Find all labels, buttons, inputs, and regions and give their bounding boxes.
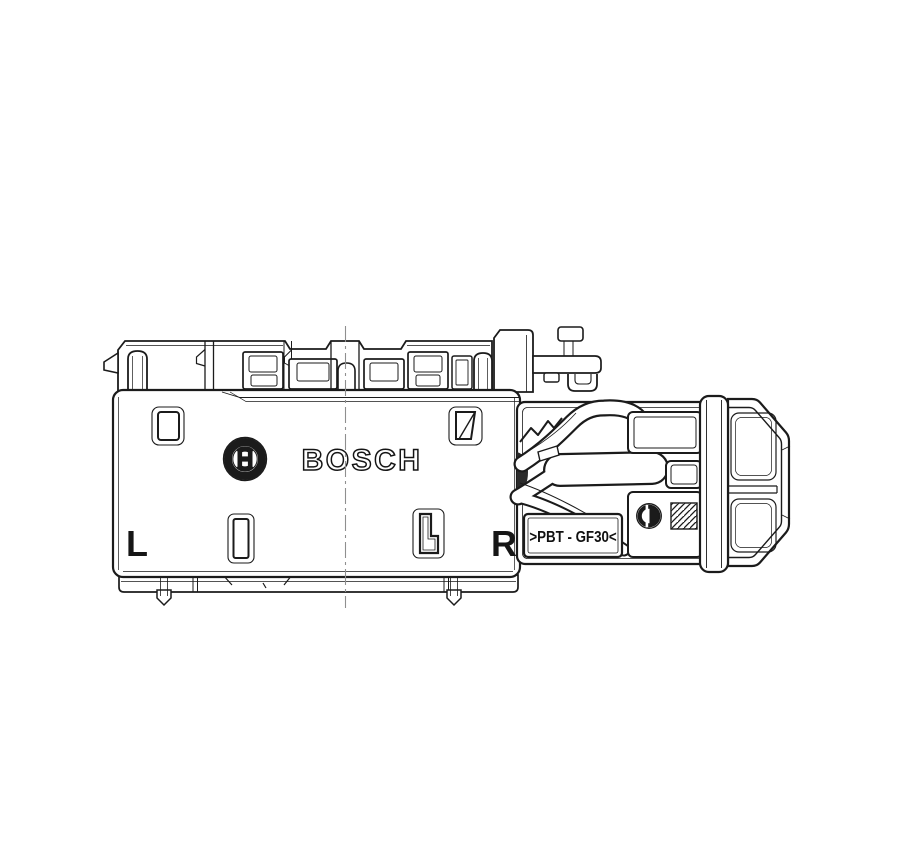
left-pin [128, 351, 147, 392]
material-marking-text: >PBT - GF30< [529, 529, 616, 546]
hinge-bar [700, 396, 728, 572]
lever-frame-mid [666, 461, 702, 488]
bosch-anchor-icon [224, 438, 267, 481]
center-pin [338, 363, 355, 392]
latch-nub [558, 327, 583, 341]
top-latch-strip [104, 327, 601, 392]
main-housing [113, 390, 520, 577]
bottom-rail [119, 575, 518, 605]
latch-window [452, 356, 472, 389]
aperture-top-right [449, 407, 482, 445]
marking-r-text: R [491, 523, 517, 564]
mount-tab [157, 590, 171, 605]
latch-hook [568, 374, 597, 391]
right-pin [474, 353, 492, 392]
handle-outer [728, 399, 789, 566]
latch-tower [494, 330, 533, 392]
aperture-top-left [152, 407, 184, 445]
drawing-canvas: BOSCH L R [0, 0, 900, 855]
slot-bottom-right [413, 509, 444, 558]
slot-bottom-left [228, 514, 254, 563]
connector-technical-drawing: BOSCH L R [0, 0, 900, 855]
brand-logo-text: BOSCH [302, 444, 423, 477]
marking-l-text: L [126, 523, 148, 564]
material-symbol-icon [637, 504, 662, 529]
lever-frame-top [628, 412, 702, 453]
mount-tab [447, 590, 461, 605]
handle-ring [700, 396, 790, 572]
hatch-square-icon [671, 503, 697, 529]
latch-arm [533, 356, 601, 373]
left-tab [104, 353, 118, 373]
